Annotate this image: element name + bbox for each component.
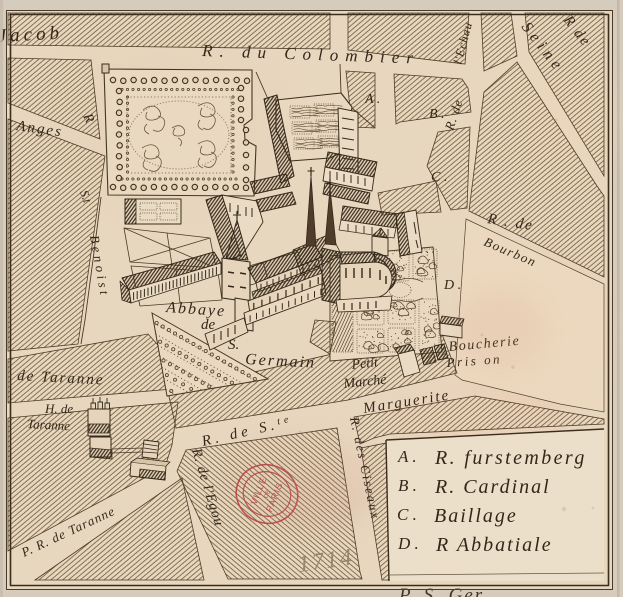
svg-text:Taranne: Taranne (27, 416, 71, 433)
svg-text:P. S. Ger: P. S. Ger (398, 585, 484, 597)
svg-text:D .: D . (443, 278, 461, 293)
svg-text:A .: A . (397, 447, 417, 466)
svg-text:R. Cardinal: R. Cardinal (434, 476, 551, 498)
svg-text:B .: B . (398, 476, 417, 495)
svg-text:H. de: H. de (44, 401, 73, 416)
svg-text:R. furstemberg: R. furstemberg (434, 447, 587, 469)
svg-text:S.: S. (228, 337, 239, 353)
svg-text:A .: A . (364, 92, 380, 107)
svg-text:Baillage: Baillage (434, 505, 518, 527)
svg-text:R Abbatiale: R Abbatiale (435, 534, 553, 556)
svg-text:C .: C . (397, 505, 417, 524)
svg-text:B .: B . (429, 107, 445, 122)
svg-text:C .: C . (431, 170, 447, 185)
svg-text:de: de (201, 317, 216, 333)
svg-text:D .: D . (397, 534, 419, 553)
svg-text:Jacob: Jacob (0, 23, 64, 47)
svg-text:Petit: Petit (350, 355, 380, 373)
